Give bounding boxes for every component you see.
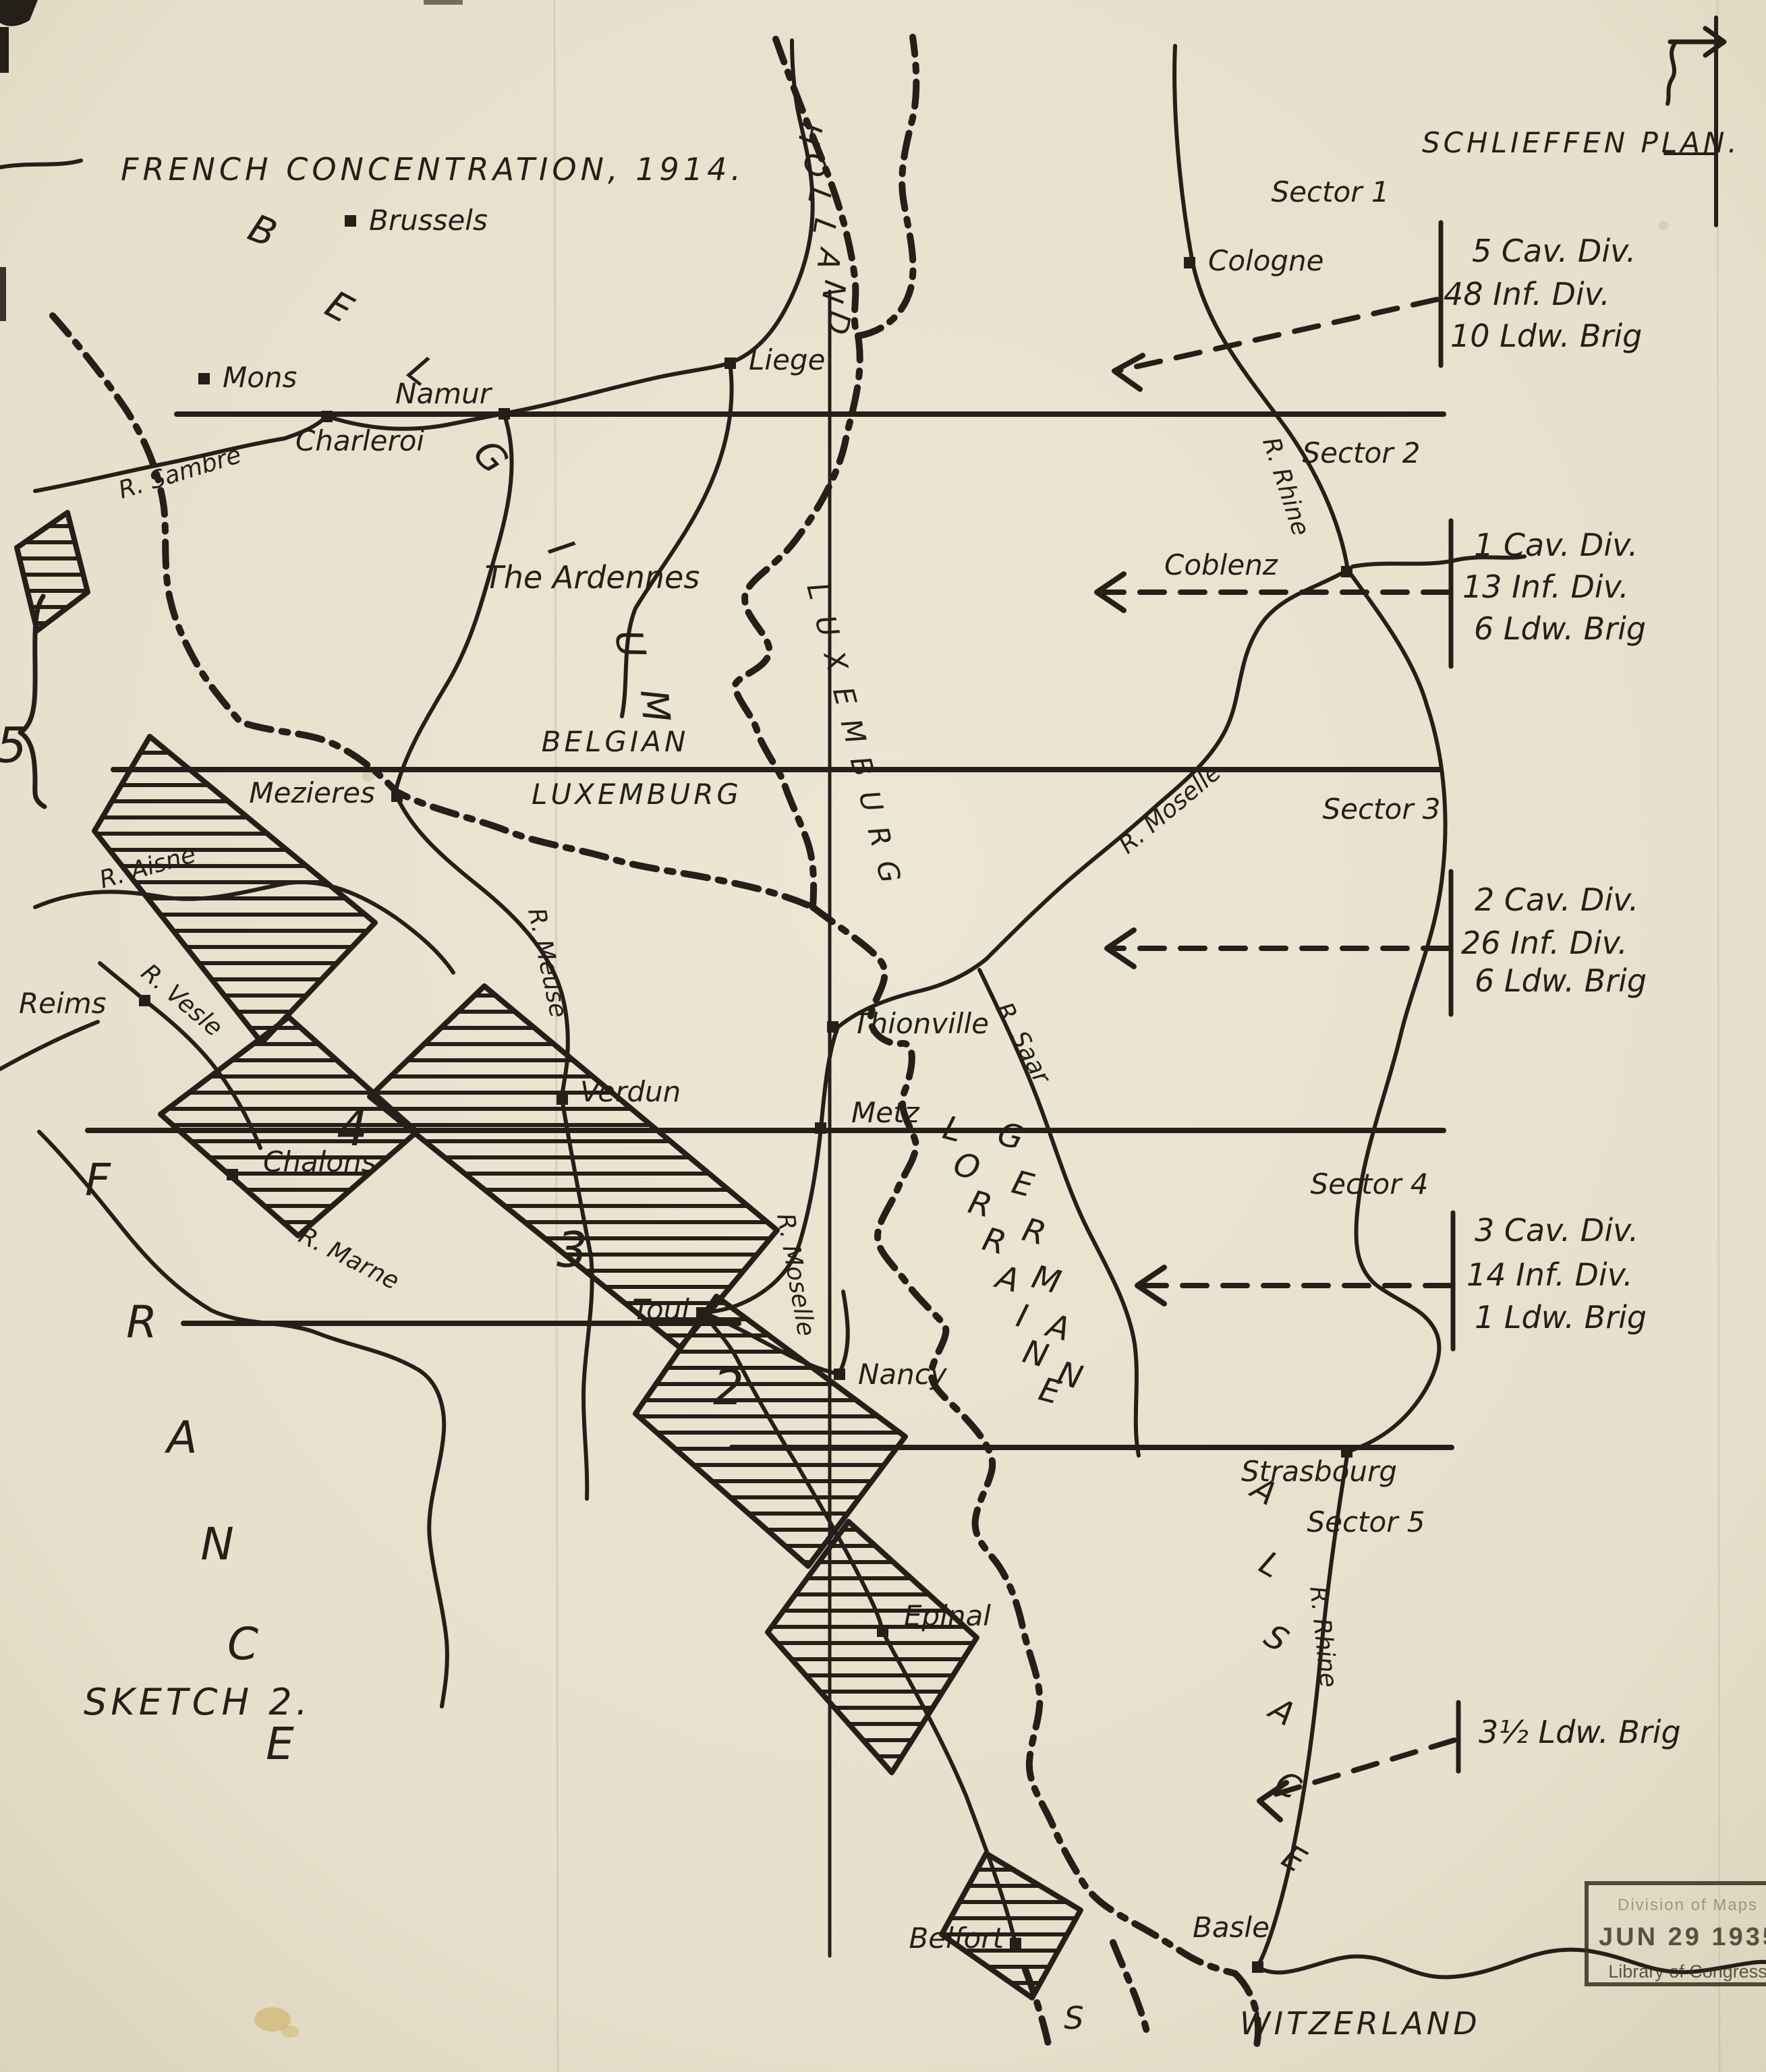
- city-marker: [345, 215, 356, 227]
- sector-4-label: Sector 4: [1310, 1168, 1428, 1201]
- sector-2-unit: 6 Ldw. Brig: [1474, 610, 1646, 647]
- stamp-division-line: Division of Maps: [1618, 1896, 1758, 1914]
- city-marker: [139, 995, 150, 1006]
- paper-stain: [1659, 221, 1668, 230]
- map-page: 5 4 3 2 Sector 1 5 Cav. Div. 48 Inf. Div…: [0, 0, 1766, 2072]
- sector-3-unit: 26 Inf. Div.: [1461, 925, 1628, 961]
- city-label: Coblenz: [1164, 548, 1278, 581]
- sketch-number-label: SKETCH 2.: [84, 1681, 312, 1723]
- city-marker: [1252, 1961, 1263, 1973]
- region-letter: N: [200, 1518, 233, 1570]
- region-label-switzerland-rest: WITZERLAND: [1240, 2005, 1481, 2042]
- region-label-belgian-luxemburg-line1: BELGIAN: [542, 725, 689, 758]
- city-label: Liege: [749, 343, 825, 376]
- region-letter: E: [266, 1718, 294, 1770]
- city-label: Reims: [19, 987, 107, 1020]
- city-marker: [724, 357, 736, 369]
- sector-3-label: Sector 3: [1322, 793, 1440, 826]
- page-title-right: SCHLIEFFEN PLAN.: [1422, 126, 1740, 159]
- region-letter: C: [227, 1618, 258, 1670]
- sector-5-label: Sector 5: [1307, 1505, 1425, 1538]
- sector-3-unit: 6 Ldw. Brig: [1475, 962, 1647, 999]
- city-label: Charleroi: [295, 424, 424, 457]
- sector-2-unit: 1 Cav. Div.: [1474, 527, 1638, 563]
- region-label-ardennes: The Ardennes: [485, 559, 700, 596]
- region-label-belgian-luxemburg-line2: LUXEMBURG: [532, 778, 742, 811]
- region-letter: M: [631, 687, 678, 724]
- corner-artifact: [0, 27, 9, 73]
- city-label: Basle: [1193, 1911, 1270, 1944]
- region-letter: R: [126, 1296, 157, 1348]
- city-label: Epinal: [904, 1599, 991, 1632]
- city-marker: [499, 408, 510, 420]
- city-label: Belfort: [909, 1922, 1004, 1955]
- region-label-switzerland-s: S: [1064, 2000, 1083, 2036]
- army-number-5: 5: [0, 717, 27, 774]
- edge-artifact: [424, 0, 463, 5]
- sector-1-unit: 5 Cav. Div.: [1472, 233, 1636, 269]
- sector-4-unit: 14 Inf. Div.: [1466, 1257, 1633, 1293]
- army-number-3: 3: [557, 1221, 588, 1278]
- city-label: Metz: [851, 1096, 920, 1129]
- city-label: Cologne: [1208, 244, 1324, 277]
- city-label: Chalons: [263, 1145, 376, 1178]
- city-label: Toul: [633, 1293, 690, 1326]
- city-marker: [557, 1093, 568, 1105]
- edge-artifact: [0, 267, 6, 321]
- city-label: Mons: [223, 361, 297, 394]
- city-label: Brussels: [369, 204, 488, 237]
- region-letter: A: [164, 1412, 197, 1464]
- city-marker: [1341, 566, 1352, 577]
- stamp-date: JUN 29 1935: [1599, 1923, 1766, 1951]
- sector-4-unit: 3 Cav. Div.: [1475, 1212, 1639, 1248]
- city-marker: [827, 1021, 838, 1033]
- city-marker: [834, 1369, 845, 1380]
- sector-5-unit: 3½ Ldw. Brig: [1479, 1714, 1681, 1750]
- city-marker: [198, 373, 210, 384]
- sector-3-unit: 2 Cav. Div.: [1475, 882, 1639, 918]
- city-marker: [815, 1122, 826, 1134]
- sector-2-label: Sector 2: [1302, 436, 1420, 469]
- city-marker: [877, 1625, 888, 1637]
- city-marker: [1010, 1938, 1021, 1949]
- sector-1-label: Sector 1: [1271, 175, 1389, 208]
- sector-1-unit: 48 Inf. Div.: [1444, 276, 1610, 312]
- city-marker: [1184, 257, 1195, 268]
- sector-1-unit: 10 Ldw. Brig: [1450, 318, 1642, 354]
- city-label: Nancy: [858, 1358, 948, 1391]
- city-label: Thionville: [853, 1007, 989, 1040]
- city-marker: [227, 1169, 238, 1180]
- stamp-org: Library of Congress: [1608, 1961, 1766, 1982]
- sector-4-unit: 1 Ldw. Brig: [1475, 1299, 1647, 1335]
- city-marker: [321, 411, 333, 422]
- page-title: FRENCH CONCENTRATION, 1914.: [121, 151, 745, 188]
- city-label: Mezieres: [249, 776, 375, 809]
- sector-2-unit: 13 Inf. Div.: [1462, 569, 1629, 605]
- city-label: Verdun: [580, 1075, 681, 1108]
- map-canvas: 5 4 3 2 Sector 1 5 Cav. Div. 48 Inf. Div…: [0, 0, 1766, 2072]
- paper-stain: [281, 2025, 299, 2038]
- region-letter: F: [85, 1154, 111, 1206]
- city-marker: [696, 1307, 708, 1319]
- city-marker: [391, 790, 403, 802]
- army-number-2: 2: [713, 1359, 744, 1416]
